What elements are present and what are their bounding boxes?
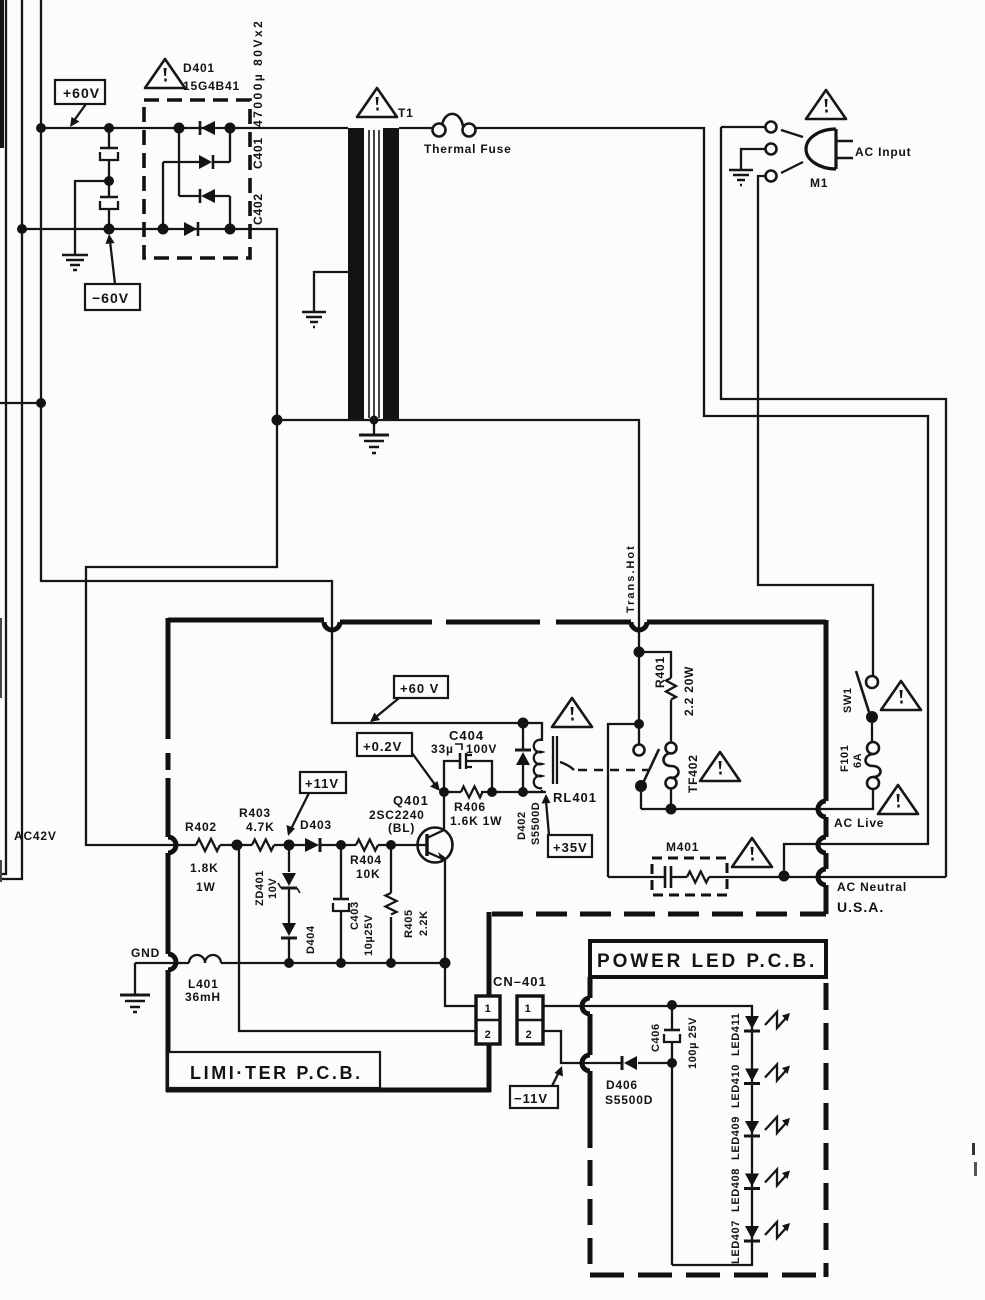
svg-text:+11V: +11V: [305, 776, 339, 791]
svg-text:D402: D402: [516, 811, 528, 840]
svg-text:−11V: −11V: [514, 1091, 548, 1106]
svg-text:47000µ 80Vx2: 47000µ 80Vx2: [251, 19, 265, 127]
svg-text:D403: D403: [300, 818, 332, 832]
svg-text:T1: T1: [398, 106, 414, 120]
svg-text:R403: R403: [239, 806, 271, 820]
svg-text:AC42V: AC42V: [14, 829, 57, 843]
svg-text:POWER LED P.C.B.: POWER LED P.C.B.: [597, 951, 817, 972]
svg-text:6A: 6A: [852, 753, 864, 768]
svg-text:C401: C401: [251, 137, 265, 169]
svg-text:LED410: LED410: [730, 1064, 742, 1108]
svg-text:LIMI·TER P.C.B.: LIMI·TER P.C.B.: [190, 1063, 363, 1083]
svg-text:100µ 25V: 100µ 25V: [687, 1017, 699, 1069]
svg-text:36mH: 36mH: [185, 990, 221, 1004]
svg-text:CN–401: CN–401: [493, 974, 547, 989]
svg-text:R401: R401: [653, 656, 667, 688]
svg-text:33µ: 33µ: [431, 742, 454, 756]
svg-text:LED407: LED407: [730, 1220, 742, 1264]
svg-text:R404: R404: [350, 853, 382, 867]
svg-text:AC Live: AC Live: [834, 816, 884, 830]
svg-text:4.7K: 4.7K: [246, 820, 275, 834]
svg-text:R406: R406: [454, 800, 486, 814]
svg-text:+0.2V: +0.2V: [363, 739, 402, 754]
svg-text:1.8K: 1.8K: [190, 861, 219, 875]
svg-text:D401: D401: [183, 61, 215, 75]
svg-text:15G4B41: 15G4B41: [183, 79, 240, 93]
svg-text:LED409: LED409: [730, 1116, 742, 1160]
svg-text:−60V: −60V: [92, 290, 129, 306]
svg-text:LED408: LED408: [730, 1168, 742, 1212]
svg-text:C404: C404: [449, 728, 484, 743]
svg-text:AC Input: AC Input: [855, 145, 911, 159]
svg-text:C402: C402: [251, 193, 265, 225]
svg-text:2SC2240: 2SC2240: [369, 808, 425, 822]
svg-text:+60 V: +60 V: [400, 681, 439, 696]
svg-text:M401: M401: [666, 840, 699, 854]
svg-text:F101: F101: [839, 745, 851, 772]
svg-text:1W: 1W: [196, 880, 216, 894]
svg-text:S5500D: S5500D: [605, 1093, 653, 1107]
svg-text:TF402: TF402: [686, 754, 700, 793]
svg-text:RL401: RL401: [553, 790, 597, 805]
svg-text:+35V: +35V: [553, 840, 588, 855]
svg-text:U.S.A.: U.S.A.: [837, 899, 884, 915]
svg-text:C406: C406: [650, 1023, 662, 1052]
svg-text:SW1: SW1: [842, 687, 854, 713]
svg-text:1: 1: [485, 1003, 492, 1015]
svg-text:1: 1: [525, 1003, 532, 1015]
svg-text:10V: 10V: [267, 878, 279, 899]
svg-text:2: 2: [526, 1029, 533, 1041]
svg-text:Trans.Hot: Trans.Hot: [625, 544, 637, 613]
svg-text:C403: C403: [349, 901, 361, 930]
svg-text:ZD401: ZD401: [254, 870, 266, 906]
svg-text:10µ25V: 10µ25V: [363, 914, 375, 956]
svg-text:GND: GND: [131, 946, 160, 960]
svg-text:10K: 10K: [356, 867, 380, 881]
svg-text:Thermal Fuse: Thermal Fuse: [424, 142, 512, 156]
svg-text:S5500D: S5500D: [530, 802, 542, 845]
svg-text:1.6K 1W: 1.6K 1W: [450, 814, 502, 828]
svg-text:R402: R402: [185, 820, 217, 834]
svg-text:D404: D404: [305, 925, 317, 954]
svg-text:LED411: LED411: [730, 1013, 742, 1056]
svg-text:D406: D406: [606, 1078, 638, 1092]
svg-text:(BL): (BL): [388, 821, 415, 835]
svg-text:100V: 100V: [466, 742, 497, 756]
svg-text:2: 2: [485, 1029, 492, 1041]
svg-text:L401: L401: [188, 977, 219, 991]
svg-text:2.2K: 2.2K: [418, 910, 430, 936]
svg-text:Q401: Q401: [393, 793, 429, 808]
svg-text:M1: M1: [810, 176, 828, 190]
svg-text:AC Neutral: AC Neutral: [837, 880, 907, 894]
svg-text:+60V: +60V: [63, 85, 100, 101]
svg-text:R405: R405: [403, 909, 415, 938]
svg-text:2.2 20W: 2.2 20W: [682, 666, 696, 716]
